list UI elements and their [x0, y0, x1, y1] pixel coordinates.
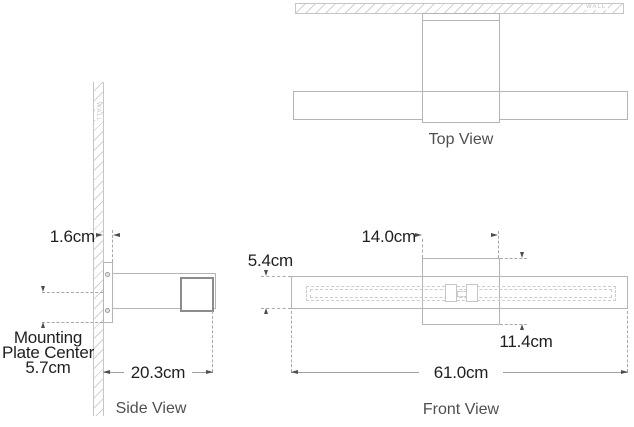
dim-extension-line [261, 276, 291, 277]
dim-bar-height-label: 5.4cm [243, 251, 293, 271]
plate-center-line [42, 292, 103, 293]
top-wall-label: WALL [584, 4, 608, 10]
mounting-plate-center-label: Mounting Plate Center 5.7cm [0, 330, 96, 375]
dim-arrow-icon [264, 270, 268, 276]
dim-plate-thickness-label: 1.6cm [45, 227, 95, 247]
side-view-caption: Side View [87, 400, 215, 418]
dim-arrow-icon [621, 370, 628, 374]
dim-extension-line [498, 231, 499, 258]
dim-backplate-height-label: 11.4cm [490, 332, 562, 352]
mounting-label-value: 5.7cm [0, 360, 96, 375]
dim-arrow-icon [206, 370, 213, 374]
dim-arrow-icon [113, 233, 120, 237]
side-bar-cross-section [180, 277, 214, 312]
dim-arrow-icon [491, 233, 498, 237]
dim-arrow-icon [103, 370, 110, 374]
dim-backplate-width-label: 14.0cm [352, 227, 416, 247]
dim-arrow-icon [291, 370, 298, 374]
screw-bottom-icon [105, 308, 110, 313]
dim-extension-line [422, 239, 423, 258]
top-view-caption: Top View [398, 131, 524, 149]
top-bar-front-edge-line [422, 91, 500, 92]
dim-arrow-icon [96, 233, 103, 237]
dim-overall-width-label: 61.0cm [419, 363, 503, 383]
dim-projection-label: 20.3cm [124, 363, 192, 383]
dim-arrow-icon [520, 324, 524, 330]
plate-bottom-line [42, 322, 103, 323]
front-view-caption: Front View [398, 401, 524, 419]
dim-extension-line [291, 311, 292, 372]
screw-top-icon [105, 272, 110, 277]
top-mount-plate-line [422, 20, 500, 21]
lamp-socket-right [466, 284, 478, 302]
dim-arrow-icon [520, 252, 524, 258]
dim-arrow-icon [264, 308, 268, 314]
dim-arrow-icon [41, 286, 45, 292]
dim-arrow-icon [415, 233, 422, 237]
technical-drawing: WALL Top View WALL 1.6cm Mounting Plate … [0, 0, 634, 427]
dim-extension-line [627, 311, 628, 372]
side-wall-label: WALL [95, 100, 101, 124]
top-mount-post [422, 13, 500, 123]
lamp-socket-left [445, 284, 457, 302]
dim-extension-line [500, 258, 527, 259]
dim-extension-line [212, 311, 213, 372]
